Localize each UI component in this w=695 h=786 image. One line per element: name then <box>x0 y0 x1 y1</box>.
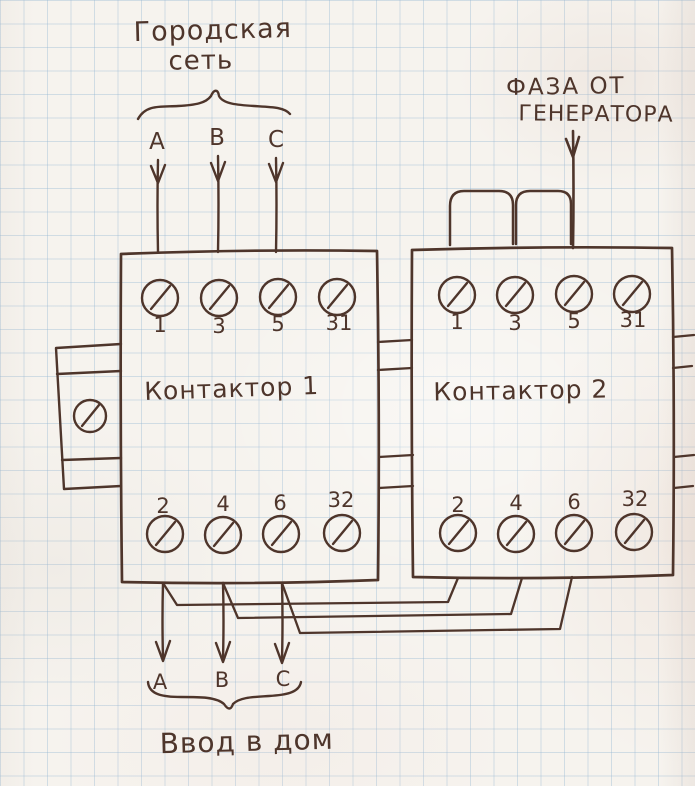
house-phase-labels: A B C <box>153 667 291 694</box>
rail-left-line-lower <box>62 458 121 460</box>
terminal-number: 5 <box>567 309 580 333</box>
contactor1-name: Контактор 1 <box>144 371 320 406</box>
terminal-number: 1 <box>450 310 463 334</box>
screw-slot-icon <box>449 521 468 544</box>
terminal-number: 6 <box>273 491 286 515</box>
contactor1-top-terminals <box>142 279 355 316</box>
generator-wire-group <box>566 131 579 248</box>
contactor2-bottom-terminal-numbers: 2 4 6 32 <box>451 487 648 517</box>
rail-left-line-upper <box>57 371 121 374</box>
graph-paper-background: Городская сеть A B C ФАЗА ОТ ГЕНЕРАТОРА <box>0 0 695 786</box>
wire-phase-c-in <box>276 158 277 252</box>
contactor2-top-terminals <box>439 276 650 313</box>
rail-rung-4 <box>379 486 413 488</box>
wire-phase-c-out <box>282 583 283 660</box>
contactor2-top-terminal-numbers: 1 3 5 31 <box>450 308 646 335</box>
rail-stub-2 <box>673 366 692 368</box>
rail-screw-slot-icon <box>82 405 99 426</box>
wire-phase-a-in <box>158 160 159 252</box>
din-rail-left-tab <box>56 344 121 489</box>
city-network-label-line2: сеть <box>168 45 233 76</box>
terminal-number: 31 <box>326 311 353 335</box>
phase-b-label-bottom: B <box>215 668 229 692</box>
screw-slot-icon <box>214 523 233 546</box>
terminal-number: 31 <box>620 308 647 332</box>
screw-slot-icon <box>328 285 347 308</box>
phase-a-label-top: A <box>149 129 165 155</box>
screw-slot-icon <box>151 286 170 309</box>
din-rail-middle-rungs <box>378 340 413 488</box>
house-input-label: Ввод в дом <box>159 723 334 761</box>
generator-label-line2: ГЕНЕРАТОРА <box>518 101 673 127</box>
screw-slot-icon <box>272 522 291 545</box>
screw-slot-icon <box>623 282 642 305</box>
city-phase-labels: A B C <box>149 125 284 155</box>
terminal-number: 5 <box>271 312 284 336</box>
wire-generator-phase <box>573 131 574 248</box>
wire-phase-b-out <box>223 583 224 659</box>
phase-c-label-bottom: C <box>276 667 291 691</box>
contactor2-box: Контактор 2 1 3 5 31 <box>412 247 674 578</box>
screw-slot-icon <box>269 285 288 308</box>
phase-b-label-top: B <box>209 125 225 151</box>
screw-slot-icon <box>565 282 584 305</box>
contactor1-top-terminal-numbers: 1 3 5 31 <box>153 311 352 338</box>
terminal-number: 32 <box>328 488 355 512</box>
screw-slot-icon <box>507 522 526 545</box>
generator-label-line1: ФАЗА ОТ <box>506 73 626 101</box>
contactor2-bottom-terminals <box>440 514 652 552</box>
contactor2-outline <box>412 247 674 578</box>
screw-slot-icon <box>210 286 229 309</box>
terminal-number: 6 <box>567 490 580 514</box>
terminal-number: 2 <box>156 494 169 518</box>
terminal-number: 32 <box>622 487 649 511</box>
terminal-number: 3 <box>212 314 225 338</box>
phase-c-label-top: C <box>268 127 284 153</box>
contactor2-name: Контактор 2 <box>433 374 608 406</box>
bump-left <box>450 191 513 245</box>
terminal-number: 3 <box>508 311 521 335</box>
rail-rung-3 <box>379 455 413 457</box>
rail-stub-1 <box>673 335 694 337</box>
house-input-label-group: Ввод в дом <box>148 682 334 760</box>
wire-phase-a-out <box>163 583 164 658</box>
din-rail-right-stubs <box>673 335 694 488</box>
phase-a-label-bottom: A <box>153 670 168 694</box>
contactor1-bottom-terminal-numbers: 2 4 6 32 <box>156 488 354 518</box>
rail-stub-3 <box>674 455 694 457</box>
city-network-label-line1: Городская <box>133 13 292 48</box>
screw-slot-icon <box>156 522 175 545</box>
screw-slot-icon <box>333 521 352 544</box>
house-feed-wires <box>156 583 289 663</box>
wire-phase-b-in <box>218 156 219 252</box>
bus-wire-phase-c <box>282 577 572 633</box>
rail-stub-4 <box>674 486 693 488</box>
terminal-number: 4 <box>509 491 522 515</box>
bump-right <box>516 191 571 244</box>
hand-drawn-schematic: Городская сеть A B C ФАЗА ОТ ГЕНЕРАТОРА <box>0 0 695 786</box>
terminal-number: 1 <box>153 313 166 337</box>
screw-slot-icon <box>506 283 525 306</box>
city-network-label-group: Городская сеть <box>133 13 292 119</box>
generator-label-group: ФАЗА ОТ ГЕНЕРАТОРА <box>506 73 674 128</box>
contactor2-top-bumps <box>450 191 571 245</box>
contactor1-box: Контактор 1 1 3 5 31 <box>121 250 379 583</box>
screw-slot-icon <box>448 283 467 306</box>
terminal-number: 2 <box>451 493 464 517</box>
terminal-number: 4 <box>216 492 229 516</box>
top-brace <box>138 91 290 119</box>
screw-slot-icon <box>625 520 644 543</box>
screw-slot-icon <box>565 521 584 544</box>
rail-rung-1 <box>378 340 412 342</box>
rail-rung-2 <box>378 368 412 370</box>
city-phase-wires <box>151 156 283 252</box>
contactor1-bottom-terminals <box>147 515 360 553</box>
